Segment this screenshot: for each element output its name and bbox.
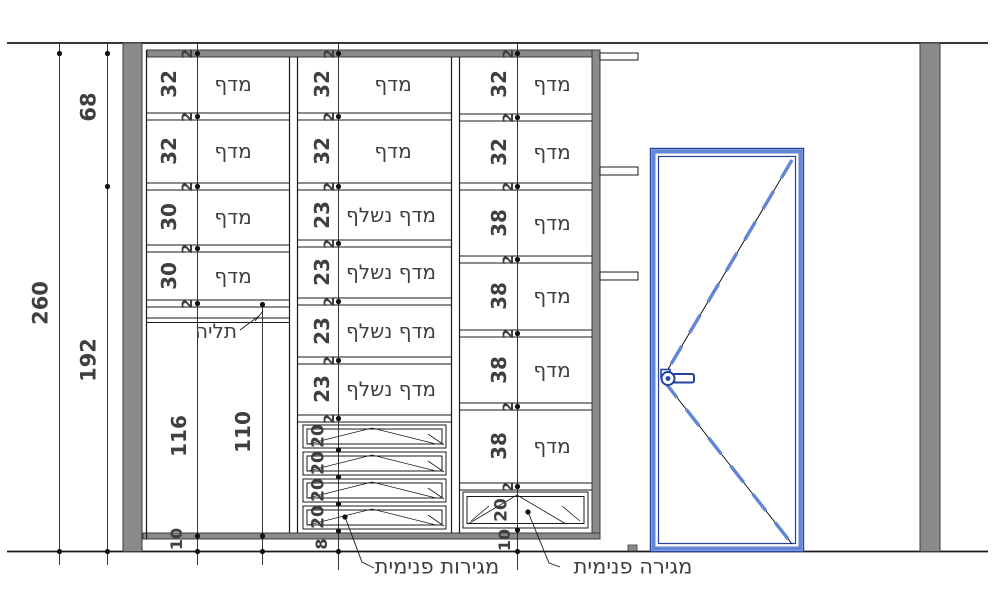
dim-right-row: 38 bbox=[489, 282, 509, 310]
closet-right-panel bbox=[592, 50, 600, 539]
internal-drawers-label: מגירות פנימית bbox=[375, 557, 500, 578]
door bbox=[651, 149, 804, 552]
drawer-marks bbox=[468, 495, 580, 524]
dim-shelf-thickness: 2 bbox=[502, 182, 516, 192]
dim-shelf-thickness: 2 bbox=[323, 49, 337, 59]
side-shelf-1 bbox=[600, 167, 638, 175]
pullout-shelf-label: מדף נשלף bbox=[346, 205, 436, 225]
shelf-label: מדף bbox=[533, 74, 570, 94]
dim-middle-plinth: 8 bbox=[314, 538, 330, 549]
dim-right-row: 32 bbox=[489, 70, 509, 98]
dim-right-row: 32 bbox=[489, 138, 509, 166]
dim-left-plinth: 10 bbox=[169, 528, 185, 550]
dim-shelf-thickness: 2 bbox=[323, 414, 337, 424]
shelf-label: מדף bbox=[214, 207, 251, 227]
shelf-label: מדף bbox=[533, 142, 570, 162]
pullout-shelf-label: מדף נשלף bbox=[346, 321, 436, 341]
dim-shelf-thickness: 2 bbox=[502, 329, 516, 339]
dim-drawer: 20 bbox=[311, 451, 328, 475]
dim-shelf-thickness: 2 bbox=[181, 299, 195, 309]
dim-shelf-thickness: 2 bbox=[181, 182, 195, 192]
dim-shelf-thickness: 2 bbox=[181, 112, 195, 122]
dim-total-height: 260 bbox=[31, 281, 52, 325]
dim-middle-row: 23 bbox=[312, 375, 332, 403]
shelf-label: מדף bbox=[533, 436, 570, 456]
dim-middle-row: 32 bbox=[312, 70, 332, 98]
shelf-label: מדף bbox=[214, 74, 251, 94]
dim-shelf-thickness: 2 bbox=[181, 49, 195, 59]
dim-upper-section: 68 bbox=[79, 92, 100, 121]
shelf-label: מדף bbox=[374, 74, 411, 94]
dim-shelf-thickness: 2 bbox=[323, 297, 337, 307]
shelf-label: מדף bbox=[533, 360, 570, 380]
shelf-label: מדף bbox=[533, 286, 570, 306]
pullout-shelf-label: מדף נשלף bbox=[346, 379, 436, 399]
right-drawer bbox=[463, 492, 588, 528]
left-wall-post bbox=[123, 43, 142, 552]
side-shelf-2 bbox=[600, 272, 638, 280]
dim-shelf-thickness: 2 bbox=[502, 49, 516, 59]
shelf-label: מדף bbox=[374, 141, 411, 161]
shelf-label: מדף bbox=[533, 213, 570, 233]
dim-shelf-thickness: 2 bbox=[323, 356, 337, 366]
dim-hang-height: 116 bbox=[169, 415, 189, 457]
dim-shelf-thickness: 2 bbox=[323, 182, 337, 192]
dim-drawer: 20 bbox=[311, 424, 328, 448]
dim-shelf-thickness: 2 bbox=[502, 482, 516, 492]
closet-top-panel bbox=[147, 50, 592, 57]
closet-elevation-drawing: 260 68 192 2 2 2 2 2 32 32 30 30 116 110… bbox=[0, 0, 1000, 611]
dim-right-row: 38 bbox=[489, 356, 509, 384]
dim-shelf-thickness: 2 bbox=[502, 113, 516, 123]
dim-right-row: 38 bbox=[489, 209, 509, 237]
closet-bottom-panel bbox=[143, 533, 600, 539]
dim-drawer: 20 bbox=[311, 478, 328, 502]
dim-shelf-thickness: 2 bbox=[323, 112, 337, 122]
dim-left-row: 30 bbox=[159, 203, 179, 231]
dim-shelf-thickness: 2 bbox=[181, 244, 195, 254]
dim-middle-row: 23 bbox=[312, 258, 332, 286]
pullout-shelf-label: מדף נשלף bbox=[346, 262, 436, 282]
shelf-label: מדף bbox=[214, 141, 251, 161]
dim-right-row: 38 bbox=[489, 432, 509, 460]
dim-rod-height: 110 bbox=[233, 411, 253, 453]
dim-lower-section: 192 bbox=[79, 338, 100, 382]
door-threshold bbox=[628, 545, 637, 551]
dim-shelf-thickness: 2 bbox=[502, 255, 516, 265]
dim-middle-row: 23 bbox=[312, 201, 332, 229]
dim-left-row: 32 bbox=[159, 137, 179, 165]
dim-drawer: 20 bbox=[311, 505, 328, 529]
dim-left-row: 32 bbox=[159, 70, 179, 98]
dim-shelf-thickness: 2 bbox=[502, 402, 516, 412]
internal-drawer-label: מגירה פנימית bbox=[574, 557, 693, 578]
side-shelf-top bbox=[600, 53, 638, 60]
dim-left-row: 30 bbox=[159, 262, 179, 290]
shelf-label: מדף bbox=[214, 266, 251, 286]
dim-middle-row: 23 bbox=[312, 317, 332, 345]
hanging-label: תליה bbox=[195, 321, 237, 341]
right-wall-post bbox=[920, 43, 940, 552]
shelf-lines bbox=[147, 113, 592, 490]
dim-right-drawer: 20 bbox=[494, 498, 511, 522]
dim-right-plinth: 10 bbox=[497, 529, 513, 551]
dim-shelf-thickness: 2 bbox=[323, 239, 337, 249]
hanging-leader bbox=[240, 311, 263, 330]
dim-middle-row: 32 bbox=[312, 137, 332, 165]
